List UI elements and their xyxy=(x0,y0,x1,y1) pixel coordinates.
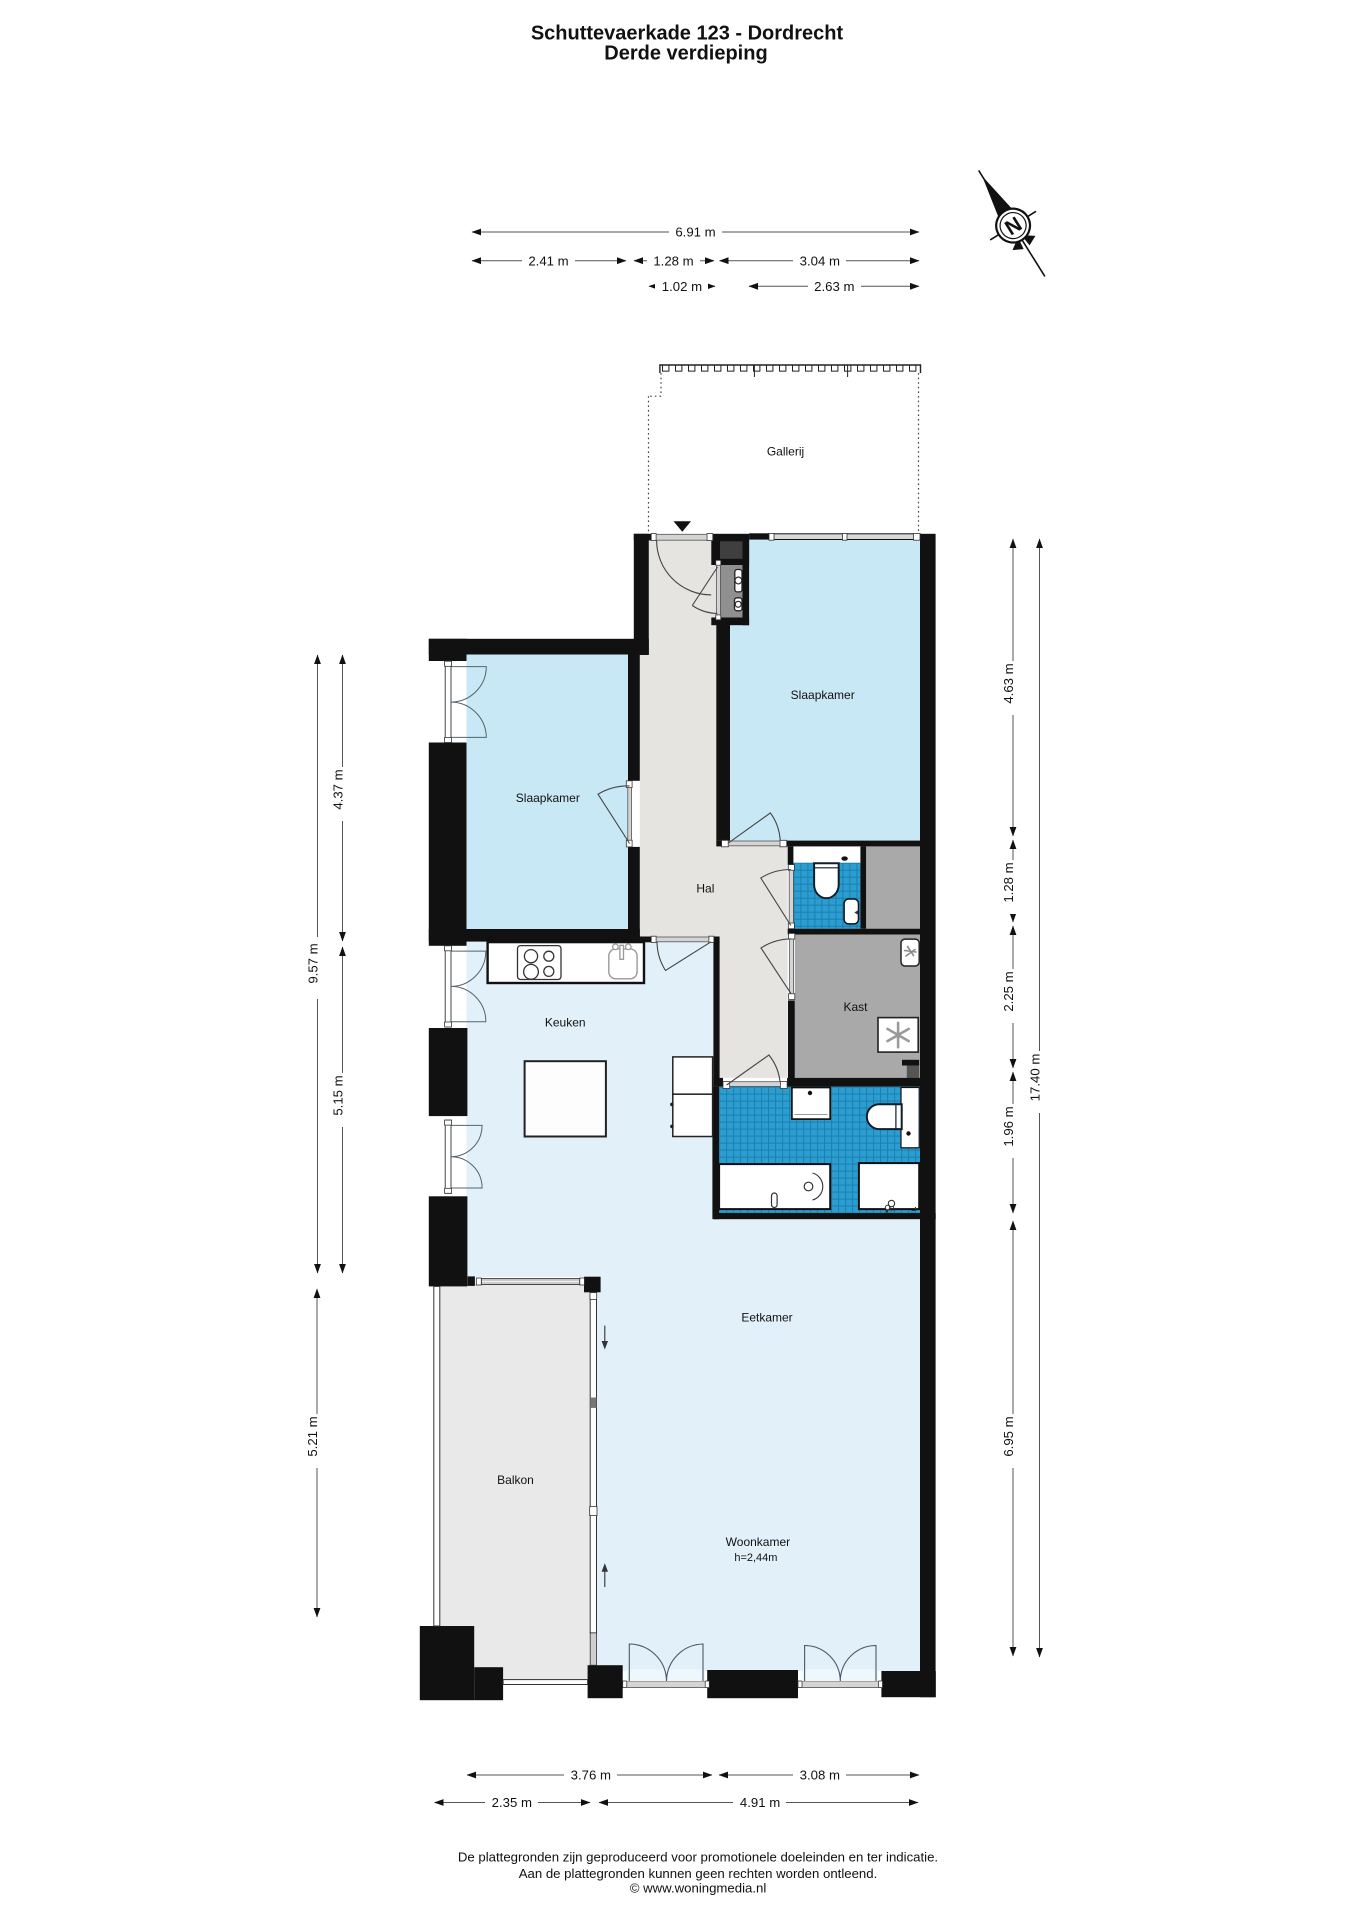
svg-text:2.63 m: 2.63 m xyxy=(814,279,854,294)
svg-text:1.28 m: 1.28 m xyxy=(1001,862,1016,902)
svg-text:Balkon: Balkon xyxy=(497,1473,534,1487)
svg-text:De plattegronden zijn geproduc: De plattegronden zijn geproduceerd voor … xyxy=(458,1850,938,1865)
svg-text:6.95 m: 6.95 m xyxy=(1001,1416,1016,1456)
svg-text:Slaapkamer: Slaapkamer xyxy=(516,791,580,805)
svg-text:5.15 m: 5.15 m xyxy=(331,1075,346,1115)
svg-text:Aan de plattegronden kunnen ge: Aan de plattegronden kunnen geen rechten… xyxy=(519,1866,878,1881)
svg-text:1.28 m: 1.28 m xyxy=(653,253,693,268)
svg-text:4.37 m: 4.37 m xyxy=(331,769,346,809)
svg-text:h=2,44m: h=2,44m xyxy=(734,1552,777,1564)
svg-text:5.21 m: 5.21 m xyxy=(305,1416,320,1456)
svg-text:Eetkamer: Eetkamer xyxy=(741,1310,792,1324)
svg-text:6.91 m: 6.91 m xyxy=(675,225,715,240)
svg-text:Slaapkamer: Slaapkamer xyxy=(791,688,855,702)
svg-text:4.91 m: 4.91 m xyxy=(740,1795,780,1810)
svg-text:Schuttevaerkade 123 - Dordrech: Schuttevaerkade 123 - Dordrecht xyxy=(531,23,844,45)
svg-text:3.04 m: 3.04 m xyxy=(800,253,840,268)
svg-text:2.35 m: 2.35 m xyxy=(492,1795,532,1810)
svg-text:2.25 m: 2.25 m xyxy=(1001,971,1016,1011)
svg-text:3.76 m: 3.76 m xyxy=(571,1768,611,1783)
svg-text:© www.woningmedia.nl: © www.woningmedia.nl xyxy=(630,1881,767,1896)
svg-text:Derde verdieping: Derde verdieping xyxy=(604,42,767,64)
svg-text:1.96 m: 1.96 m xyxy=(1001,1106,1016,1146)
svg-text:Gallerij: Gallerij xyxy=(767,445,804,459)
svg-text:17.40 m: 17.40 m xyxy=(1028,1054,1043,1102)
svg-text:Kast: Kast xyxy=(843,1000,868,1014)
svg-text:2.41 m: 2.41 m xyxy=(528,253,568,268)
svg-text:Hal: Hal xyxy=(696,882,714,896)
svg-text:Woonkamer: Woonkamer xyxy=(726,1535,790,1549)
svg-text:9.57 m: 9.57 m xyxy=(306,943,321,983)
svg-text:1.02 m: 1.02 m xyxy=(662,279,702,294)
svg-text:Keuken: Keuken xyxy=(545,1016,586,1030)
svg-text:3.08 m: 3.08 m xyxy=(800,1768,840,1783)
svg-text:4.63 m: 4.63 m xyxy=(1001,663,1016,703)
